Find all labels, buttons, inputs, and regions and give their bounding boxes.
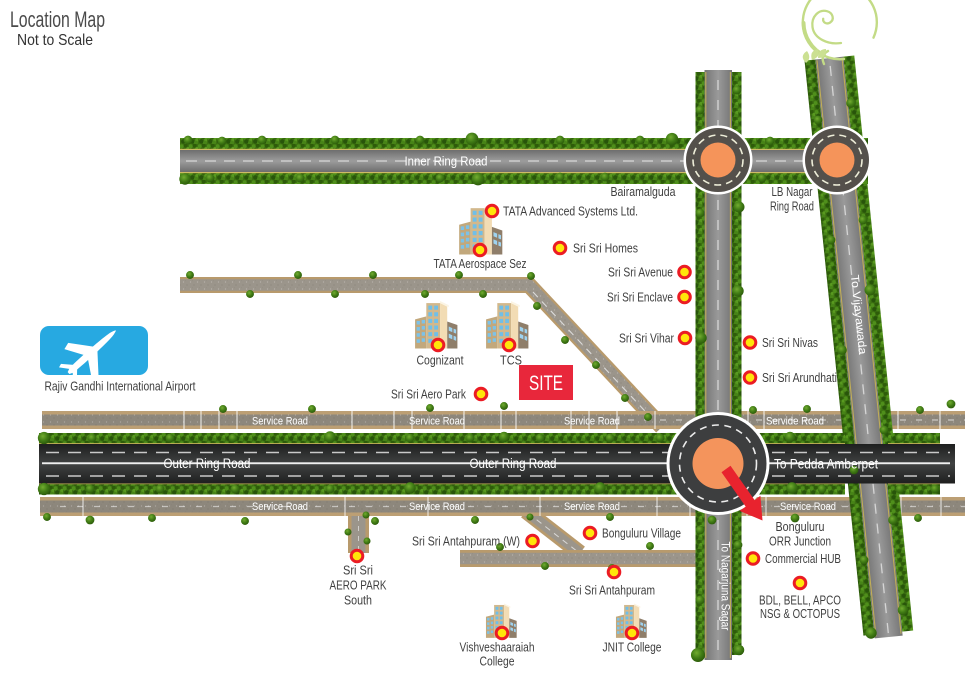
- svg-text:Inner Ring Road: Inner Ring Road: [405, 155, 488, 169]
- svg-text:Sri Sri Arundhati: Sri Sri Arundhati: [762, 371, 837, 385]
- svg-text:Service Road: Service Road: [564, 501, 620, 513]
- svg-text:Location Map: Location Map: [10, 7, 105, 32]
- svg-text:Ring Road: Ring Road: [770, 200, 814, 214]
- svg-text:Sri Sri Antahpuram: Sri Sri Antahpuram: [569, 584, 655, 598]
- svg-text:SITE: SITE: [529, 372, 563, 395]
- svg-text:Service Road: Service Road: [252, 416, 308, 428]
- svg-text:JNIT College: JNIT College: [603, 641, 662, 655]
- svg-text:South: South: [344, 594, 372, 608]
- svg-text:Bonguluru Village: Bonguluru Village: [602, 527, 681, 541]
- svg-text:Service Road: Service Road: [252, 501, 308, 513]
- svg-text:AERO PARK: AERO PARK: [330, 579, 388, 593]
- svg-text:Sri Sri Enclave: Sri Sri Enclave: [607, 291, 673, 305]
- svg-text:Commercial HUB: Commercial HUB: [765, 552, 841, 566]
- svg-text:Servide Road: Servide Road: [766, 416, 824, 428]
- svg-text:LB Nagar: LB Nagar: [772, 185, 813, 199]
- svg-text:Sri Sri Vihar: Sri Sri Vihar: [619, 332, 674, 346]
- svg-text:NSG & OCTOPUS: NSG & OCTOPUS: [760, 607, 840, 621]
- svg-text:ORR Junction: ORR Junction: [769, 535, 831, 549]
- svg-text:Not to Scale: Not to Scale: [17, 32, 93, 49]
- svg-text:Service Road: Service Road: [409, 501, 465, 513]
- svg-text:Service Road: Service Road: [409, 416, 465, 428]
- svg-text:Service Road: Service Road: [564, 416, 620, 428]
- svg-text:Outer Ring Road: Outer Ring Road: [470, 456, 557, 471]
- svg-text:TATA Aerospace Sez: TATA Aerospace Sez: [434, 257, 527, 271]
- svg-text:To Pedda Amberpet: To Pedda Amberpet: [774, 457, 878, 472]
- svg-text:Vishveshaaraiah: Vishveshaaraiah: [460, 641, 535, 655]
- svg-text:TCS: TCS: [500, 354, 522, 368]
- svg-text:Cognizant: Cognizant: [417, 354, 464, 368]
- svg-text:Rajiv Gandhi International Air: Rajiv Gandhi International Airport: [45, 380, 196, 394]
- svg-text:Sri Sri Antahpuram (W): Sri Sri Antahpuram (W): [412, 535, 520, 549]
- svg-text:To Nagarjuna Sagar: To Nagarjuna Sagar: [719, 542, 731, 631]
- svg-text:BDL, BELL, APCO: BDL, BELL, APCO: [759, 594, 841, 608]
- svg-text:Service Road: Service Road: [780, 501, 836, 513]
- svg-text:Outer Ring Road: Outer Ring Road: [164, 456, 251, 471]
- svg-text:Sri Sri Homes: Sri Sri Homes: [573, 242, 638, 256]
- svg-text:Sri Sri Aero Park: Sri Sri Aero Park: [391, 388, 467, 402]
- svg-text:TATA Advanced Systems Ltd.: TATA Advanced Systems Ltd.: [503, 205, 638, 219]
- svg-text:Bonguluru: Bonguluru: [776, 520, 825, 534]
- svg-text:Sri Sri Nivas: Sri Sri Nivas: [762, 336, 818, 350]
- svg-text:College: College: [480, 655, 515, 669]
- svg-text:Bairamalguda: Bairamalguda: [611, 185, 676, 199]
- svg-text:Sri Sri: Sri Sri: [343, 564, 373, 578]
- svg-text:Sri Sri Avenue: Sri Sri Avenue: [608, 266, 673, 280]
